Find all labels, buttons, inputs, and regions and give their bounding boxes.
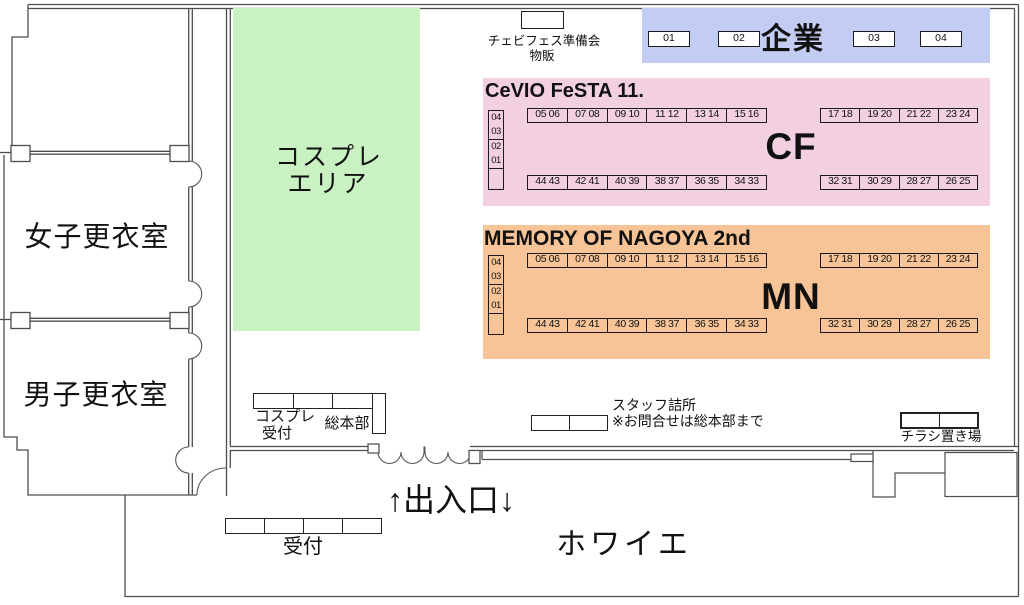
booth-cell: 42 41 [567,176,607,189]
booth-cell: 13 14 [686,254,726,267]
venue-floorplan: コスプレ エリア チェビフェス準備会 物販 企業 01 02 03 04 CeV… [0,0,1024,605]
booth-cell: 15 16 [726,109,766,122]
booth-cell: 26 25 [938,176,977,189]
staff-room-label-2: ※お問合せは総本部まで [612,413,764,429]
cosplay-reception-label-1: コスプレ [255,408,315,425]
booth-cell: 30 29 [859,319,898,332]
cf-side-booths: 04 03 02 01 [488,110,504,190]
cosplay-area-label-2: エリア [287,170,368,199]
cf-row-bottom-left: 44 43 42 41 40 39 38 37 36 35 34 33 [527,175,767,190]
mn-row-bottom-left: 44 43 42 41 40 39 38 37 36 35 34 33 [527,318,767,333]
booth-cell: 32 31 [821,319,859,332]
booth-cell: 28 27 [899,319,938,332]
booth-cell: 38 37 [646,176,686,189]
booth-cell: 19 20 [859,254,898,267]
booth-cell: 11 12 [646,254,686,267]
cf-abbr-label: CF [765,126,816,169]
booth-cell: 23 24 [938,254,977,267]
stair-structure [482,451,1017,498]
booth-cell: 02 [489,139,503,154]
entrance-label: ↑出入口↓ [387,482,515,519]
booth-cell: 38 37 [646,319,686,332]
flyer-place-label: チラシ置き場 [901,429,982,445]
mn-side-booths: 04 03 02 01 [488,255,504,335]
table-cell [332,394,372,408]
mn-row-top-right: 17 18 19 20 21 22 23 24 [820,253,978,268]
staff-room-label-1: スタッフ詰所 [612,397,696,413]
table-cell [569,416,607,430]
headquarters-label: 総本部 [324,415,369,432]
booth-cell: 40 39 [607,176,647,189]
booth-cell: 09 10 [607,109,647,122]
booth-cell: 17 18 [821,254,859,267]
booth-cell: 28 27 [899,176,938,189]
booth-cell: 03 [489,125,503,139]
booth-cell: 01 [489,299,503,313]
mn-row-bottom-right: 32 31 30 29 28 27 26 25 [820,318,978,333]
booth-cell: 05 06 [528,109,567,122]
booth-cell: 19 20 [859,109,898,122]
booth-cell: 23 24 [938,109,977,122]
table-cell [532,416,569,430]
reception-tables [225,518,382,534]
booth-cell: 03 [489,270,503,284]
reception-label: 受付 [283,536,323,559]
cf-row-bottom-right: 32 31 30 29 28 27 26 25 [820,175,978,190]
table-cell [939,414,977,427]
booth-cell: 15 16 [726,254,766,267]
table-cell [902,414,939,427]
table-cell [303,519,342,533]
cosplay-reception-hq-tables [253,393,373,409]
booth-cell: 40 39 [607,319,647,332]
prep-sales-label-1: チェビフェス準備会 [488,34,601,48]
cf-row-top-right: 17 18 19 20 21 22 23 24 [820,108,978,123]
booth-cell: 05 06 [528,254,567,267]
men-changing-room-label: 男子更衣室 [23,379,168,411]
booth-cell: 32 31 [821,176,859,189]
women-changing-room-label: 女子更衣室 [24,221,169,253]
booth-cell: 09 10 [607,254,647,267]
table-cell [264,519,303,533]
cf-row-top-left: 05 06 07 08 09 10 11 12 13 14 15 16 [527,108,767,123]
booth-cell: 34 33 [726,319,766,332]
mn-title: MEMORY OF NAGOYA 2nd [484,227,751,251]
table-cell [254,394,293,408]
booth-cell: 02 [489,284,503,299]
booth-cell: 42 41 [567,319,607,332]
cosplay-area-label-1: コスプレ [275,143,383,172]
booth-cell-empty [489,313,503,326]
hq-side-table [372,393,386,434]
corporate-zone-label: 企業 [761,23,825,58]
booth-cell: 36 35 [686,176,726,189]
booth-cell: 44 43 [528,176,567,189]
booth-cell: 01 [489,154,503,168]
booth-cell: 36 35 [686,319,726,332]
mn-row-top-left: 05 06 07 08 09 10 11 12 13 14 15 16 [527,253,767,268]
prep-sales-table [521,11,564,29]
table-cell [226,519,264,533]
booth-cell: 07 08 [567,254,607,267]
booth-cell-empty [489,168,503,181]
booth-cell: 04 [489,111,503,125]
corporate-booth-02: 02 [718,31,760,47]
mn-abbr-label: MN [761,276,821,319]
booth-cell: 04 [489,256,503,270]
booth-cell: 26 25 [938,319,977,332]
staff-room-tables [531,415,608,431]
table-cell [293,394,333,408]
prep-sales-label-2: 物販 [529,49,554,63]
booth-cell: 30 29 [859,176,898,189]
entrance-doors [368,444,480,464]
cosplay-reception-label-2: 受付 [262,425,292,442]
booth-cell: 11 12 [646,109,686,122]
corporate-booth-03: 03 [853,31,895,47]
booth-cell: 13 14 [686,109,726,122]
booth-cell: 21 22 [899,254,938,267]
corporate-booth-04: 04 [920,31,962,47]
flyer-tables [900,412,979,429]
booth-cell: 07 08 [567,109,607,122]
foyer-label: ホワイエ [556,528,692,563]
corporate-booth-01: 01 [648,31,690,47]
booth-cell: 21 22 [899,109,938,122]
table-cell [342,519,381,533]
booth-cell: 34 33 [726,176,766,189]
booth-cell: 44 43 [528,319,567,332]
booth-cell: 17 18 [821,109,859,122]
cf-title: CeVIO FeSTA 11. [485,80,644,103]
